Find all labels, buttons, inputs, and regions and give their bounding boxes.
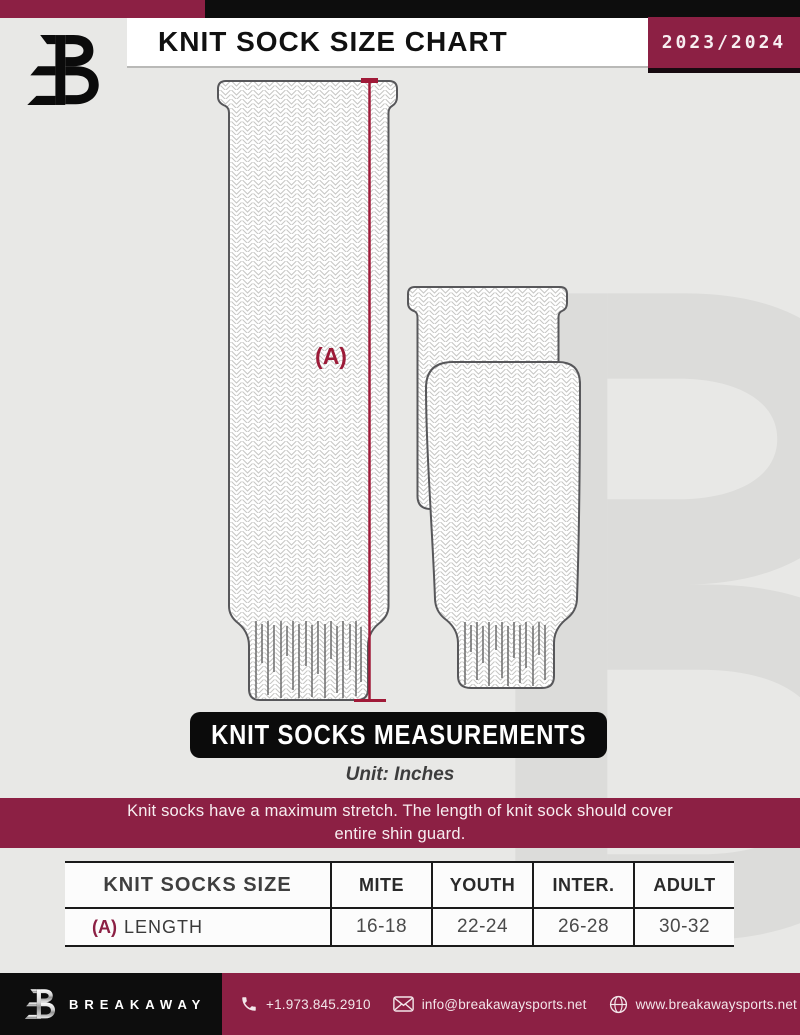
envelope-icon	[393, 996, 414, 1012]
footer-email: info@breakawaysports.net	[393, 996, 587, 1012]
col-header-youth: YOUTH	[431, 863, 532, 907]
season-badge: 2023/2024	[648, 17, 800, 73]
notice-line-2: entire shin guard.	[334, 823, 465, 846]
footer-contacts: +1.973.845.2910 info@breakawaysports.net…	[222, 973, 800, 1035]
unit-note: Unit: Inches	[0, 764, 800, 786]
table-row-header: KNIT SOCKS SIZE	[65, 863, 330, 907]
season-label: 2023/2024	[662, 32, 787, 53]
footer-brand-name: BREAKAWAY	[69, 997, 206, 1012]
phone-icon	[240, 995, 258, 1013]
breakaway-b-logo-footer	[24, 985, 56, 1023]
measurements-banner-title: KNIT SOCKS MEASUREMENTS	[211, 719, 586, 751]
footer-website-text: www.breakawaysports.net	[636, 997, 797, 1012]
length-value-inter: 26-28	[532, 909, 633, 945]
footer-phone-text: +1.973.845.2910	[266, 997, 371, 1012]
dimension-label-a: (A)	[315, 343, 347, 369]
footer-website: www.breakawaysports.net	[609, 995, 797, 1014]
length-value-mite: 16-18	[330, 909, 431, 945]
col-header-inter: INTER.	[532, 863, 633, 907]
measurements-banner: KNIT SOCKS MEASUREMENTS	[190, 712, 607, 758]
page-title: KNIT SOCK SIZE CHART	[127, 18, 648, 65]
length-value-youth: 22-24	[431, 909, 532, 945]
size-table-length-row: (A) LENGTH 16-18 22-24 26-28 30-32	[65, 909, 734, 945]
length-value-adult: 30-32	[633, 909, 734, 945]
notice-line-1: Knit socks have a maximum stretch. The l…	[127, 800, 673, 823]
footer: BREAKAWAY +1.973.845.2910 info@breakaway…	[0, 973, 800, 1035]
size-chart-page: KNIT SOCK SIZE CHART 2023/2024	[0, 0, 800, 1035]
footer-brand-box: BREAKAWAY	[0, 973, 222, 1035]
col-header-adult: ADULT	[633, 863, 734, 907]
size-table-header-row: KNIT SOCKS SIZE MITE YOUTH INTER. ADULT	[65, 863, 734, 909]
sock-diagram: (A)	[180, 75, 590, 715]
top-strip-black	[205, 0, 800, 18]
footer-email-text: info@breakawaysports.net	[422, 997, 587, 1012]
top-strip-maroon	[0, 0, 205, 18]
notice-band: Knit socks have a maximum stretch. The l…	[0, 798, 800, 848]
dim-a-tag: (A)	[92, 917, 117, 938]
length-label: LENGTH	[124, 917, 203, 938]
breakaway-b-logo	[25, 24, 101, 116]
title-box: KNIT SOCK SIZE CHART	[127, 18, 648, 68]
footer-phone: +1.973.845.2910	[240, 995, 371, 1013]
col-header-mite: MITE	[330, 863, 431, 907]
globe-icon	[609, 995, 628, 1014]
size-table: KNIT SOCKS SIZE MITE YOUTH INTER. ADULT …	[65, 861, 734, 947]
sock-small-front	[426, 362, 580, 688]
length-row-label-cell: (A) LENGTH	[65, 909, 330, 945]
